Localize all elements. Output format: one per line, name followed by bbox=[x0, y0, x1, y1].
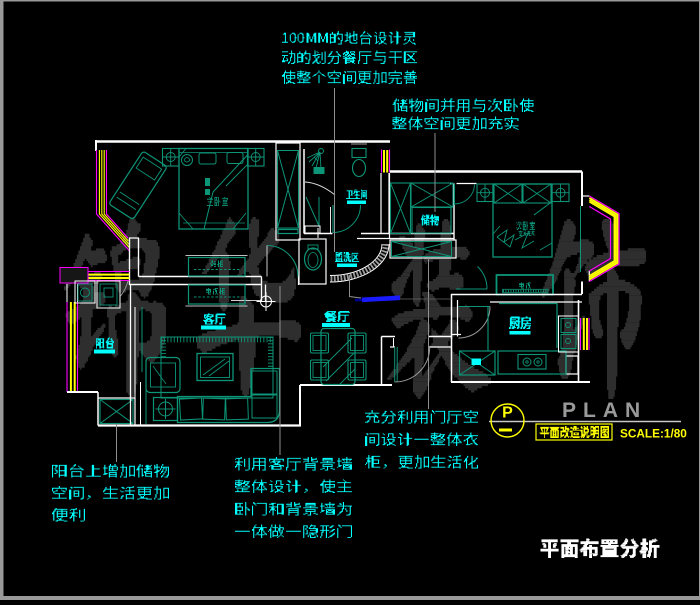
svg-text:PLAN: PLAN bbox=[562, 399, 647, 422]
svg-text:SCALE:1/80: SCALE:1/80 bbox=[620, 427, 687, 441]
svg-text:P: P bbox=[502, 405, 513, 422]
